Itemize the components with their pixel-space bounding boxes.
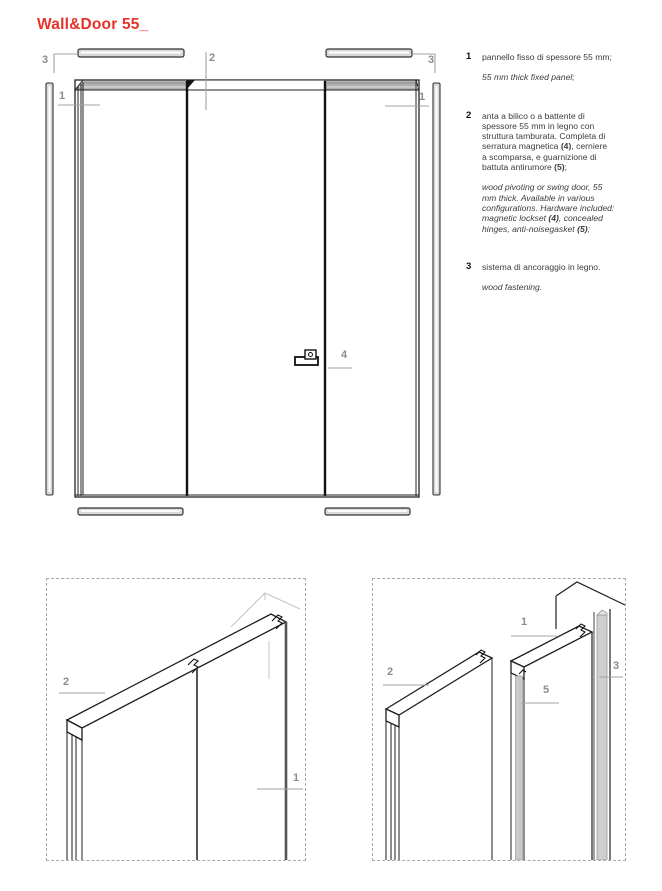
legend-number: 2: [466, 111, 475, 244]
wood-fastening-bar-bottom-right: [325, 508, 410, 515]
legend-text-english: wood pivoting or swing door, 55 mm thick…: [482, 182, 660, 233]
detail-right-svg: [373, 579, 625, 860]
page-title: Wall&Door 55_: [37, 16, 148, 34]
elevation-drawing-svg: [36, 46, 450, 525]
wall-column-outline: [556, 582, 625, 629]
callout-2-door: 2: [63, 677, 69, 688]
wood-fastening-strip: [597, 615, 607, 860]
detail-drawing-side-jamb: 2 1 5 3: [372, 578, 626, 861]
callout-2-door: 2: [387, 667, 393, 678]
door-left-edge-lines: [67, 732, 82, 860]
legend-item-wood-fastening: 3 sistema di ancoraggio in legno. wood f…: [466, 262, 660, 303]
legend-item-fixed-panel: 1 pannello fisso di spessore 55 mm; 55 m…: [466, 52, 660, 93]
fixed-panel-top: [511, 626, 592, 679]
callout-3-top-left: 3: [42, 55, 48, 66]
legend-text-italian: anta a bilico o a battente di spessore 5…: [482, 111, 660, 173]
callout-3-fastening: 3: [613, 661, 619, 672]
anchoring-strip-left: [46, 83, 53, 495]
callout-2-top: 2: [209, 53, 215, 64]
door-top-rail: [67, 614, 286, 740]
wood-fastening-bar-top-right: [326, 49, 412, 57]
callout-3-top-right: 3: [428, 55, 434, 66]
legend-text-english: wood fastening.: [482, 282, 660, 292]
callout-5-gasket: 5: [543, 685, 549, 696]
panel-assembly: [75, 80, 419, 497]
legend-number: 3: [466, 262, 475, 303]
anti-noise-gasket: [516, 676, 523, 860]
legend-text-english: 55 mm thick fixed panel;: [482, 72, 660, 82]
wood-fastening-bar-top-left: [78, 49, 184, 57]
callout-1-panel: 1: [293, 773, 299, 784]
legend-number: 1: [466, 52, 475, 93]
callout-4-lockset: 4: [341, 350, 347, 361]
callout-1-panel: 1: [521, 617, 527, 628]
wood-fastening-bar-bottom-left: [78, 508, 183, 515]
detail-left-svg: [47, 579, 305, 860]
anchoring-strip-right: [433, 83, 440, 495]
legend-item-door: 2 anta a bilico o a battente di spessore…: [466, 111, 660, 244]
catalog-page: { "page": { "title": "Wall&Door 55_", "a…: [0, 0, 662, 891]
legend: 1 pannello fisso di spessore 55 mm; 55 m…: [466, 52, 660, 320]
legend-text-italian: pannello fisso di spessore 55 mm;: [482, 52, 660, 62]
elevation-drawing: [36, 46, 450, 525]
callout-1-right: 1: [419, 92, 425, 103]
door-panel-top: [386, 652, 492, 727]
wood-fastening-strip-top: [597, 610, 607, 615]
legend-text-italian: sistema di ancoraggio in legno.: [482, 262, 660, 272]
detail-drawing-top-rail: 2 1: [46, 578, 306, 861]
callout-1-left: 1: [59, 91, 65, 102]
